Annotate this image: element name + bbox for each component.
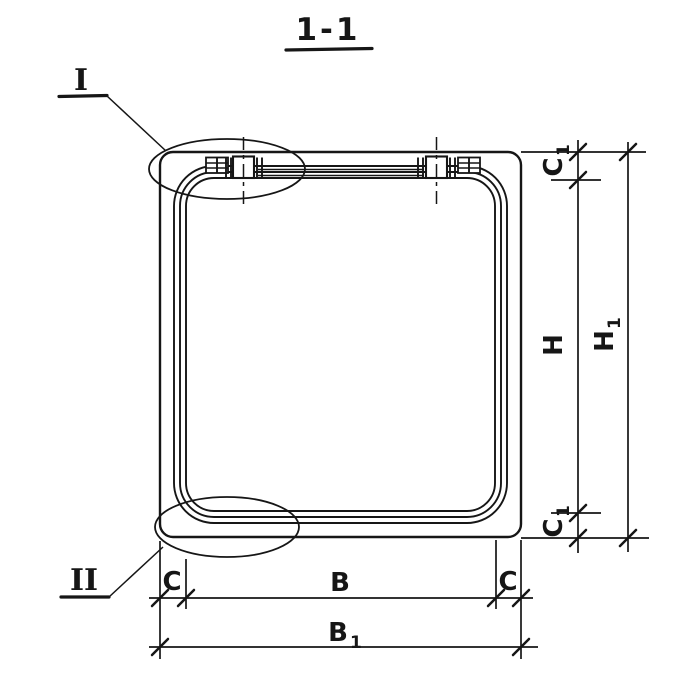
svg-text:H: H: [539, 334, 569, 356]
svg-text:C: C: [539, 157, 569, 176]
technical-drawing: I II 1-1 C 1 H C 1: [0, 0, 700, 700]
detail-callout-II: II: [61, 547, 163, 598]
detail-label-I: I: [74, 63, 88, 98]
dim-label-c-right: C: [498, 567, 517, 597]
svg-text:B: B: [328, 618, 348, 648]
joint-left: [206, 157, 262, 179]
svg-text:1: 1: [350, 633, 362, 653]
svg-text:1: 1: [605, 317, 625, 329]
section-title-underline: [286, 49, 372, 51]
dim-label-h: H: [539, 334, 569, 356]
section-title-text: 1-1: [295, 12, 360, 48]
joint-right: [418, 157, 480, 179]
dim-label-c-left: C: [162, 567, 181, 597]
inner-cavity-contour: [186, 178, 495, 511]
outer-contour: [160, 152, 521, 537]
wall-liner-line-1: [174, 166, 507, 523]
section-title: 1-1: [286, 12, 372, 50]
svg-text:H: H: [590, 330, 620, 352]
detail-label-II: II: [70, 563, 98, 598]
detail-leader-II: [109, 547, 163, 597]
section-view: [160, 152, 521, 537]
svg-text:1: 1: [554, 505, 574, 517]
detail-label-I-underline: [59, 96, 107, 97]
dim-label-b1: B 1: [328, 618, 362, 653]
dimensions-bottom: C B C B 1: [149, 540, 538, 659]
wall-liner-line-2: [180, 172, 501, 517]
detail-ellipse-II: [155, 497, 299, 557]
dimensions-right: C 1 H C 1 H 1: [521, 140, 649, 553]
dim-label-c1-bottom: C 1: [539, 505, 574, 537]
dim-label-h1: H 1: [590, 317, 625, 352]
dim-label-c1-top: C 1: [539, 144, 574, 176]
dim-label-b: B: [330, 568, 350, 598]
svg-text:C: C: [539, 518, 569, 537]
svg-text:1: 1: [554, 144, 574, 156]
detail-leader-I: [107, 96, 166, 151]
detail-callout-I: I: [59, 63, 166, 151]
